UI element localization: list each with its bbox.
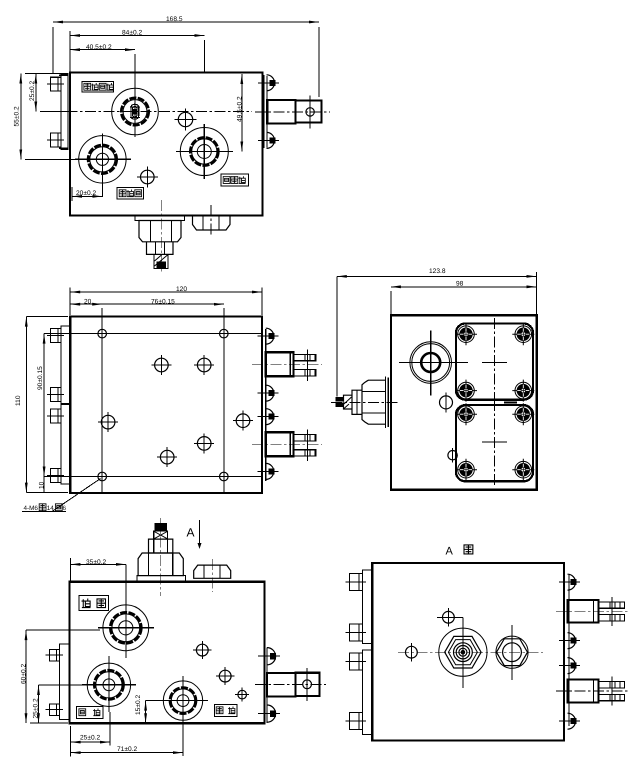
- svg-text:25±0.2: 25±0.2: [29, 81, 36, 101]
- svg-text:10: 10: [39, 481, 46, 489]
- svg-text:6: 6: [63, 505, 67, 512]
- svg-text:98: 98: [456, 280, 464, 287]
- svg-text:49.5±0.2: 49.5±0.2: [236, 96, 243, 122]
- svg-text:60±0.2: 60±0.2: [20, 664, 27, 684]
- svg-text:A: A: [446, 546, 454, 558]
- svg-text:4-M6: 4-M6: [24, 505, 39, 512]
- svg-text:123.8: 123.8: [429, 268, 446, 275]
- svg-text:90±0.15: 90±0.15: [37, 366, 44, 390]
- svg-text:71±0.2: 71±0.2: [117, 746, 137, 753]
- svg-text:14: 14: [47, 505, 55, 512]
- svg-text:25±0.2: 25±0.2: [80, 735, 100, 742]
- svg-text:168.5: 168.5: [166, 16, 183, 23]
- svg-text:40.5±0.2: 40.5±0.2: [86, 44, 112, 51]
- svg-text:55±0.2: 55±0.2: [14, 106, 21, 126]
- svg-text:120: 120: [176, 286, 187, 293]
- svg-text:20±0.2: 20±0.2: [76, 190, 96, 197]
- svg-text:84±0.2: 84±0.2: [122, 30, 142, 37]
- svg-text:20: 20: [84, 298, 92, 305]
- svg-text:25±0.2: 25±0.2: [32, 698, 39, 718]
- svg-text:76±0.15: 76±0.15: [151, 298, 175, 305]
- svg-text:35±0.2: 35±0.2: [86, 559, 106, 566]
- svg-text:15±0.2: 15±0.2: [135, 695, 142, 715]
- svg-text:110: 110: [15, 395, 22, 406]
- svg-text:A: A: [187, 526, 195, 540]
